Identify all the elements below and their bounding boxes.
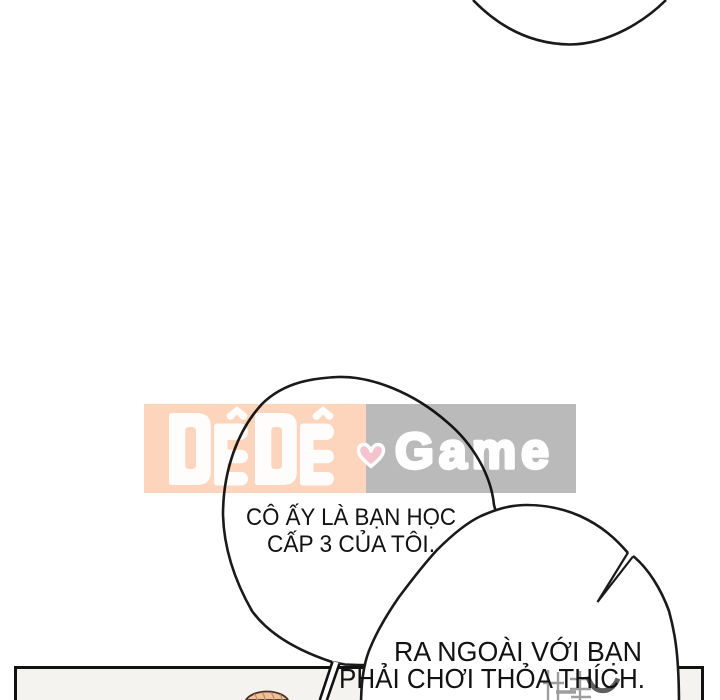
svg-text:CẤP 3 CỦA TÔI.: CẤP 3 CỦA TÔI. bbox=[267, 529, 435, 558]
svg-text:Game: Game bbox=[395, 423, 554, 479]
svg-text:PHẢI CHƠI THỎA THÍCH.: PHẢI CHƠI THỎA THÍCH. bbox=[339, 662, 645, 694]
svg-text:CÔ ẤY LÀ BẠN HỌC: CÔ ẤY LÀ BẠN HỌC bbox=[246, 503, 456, 531]
